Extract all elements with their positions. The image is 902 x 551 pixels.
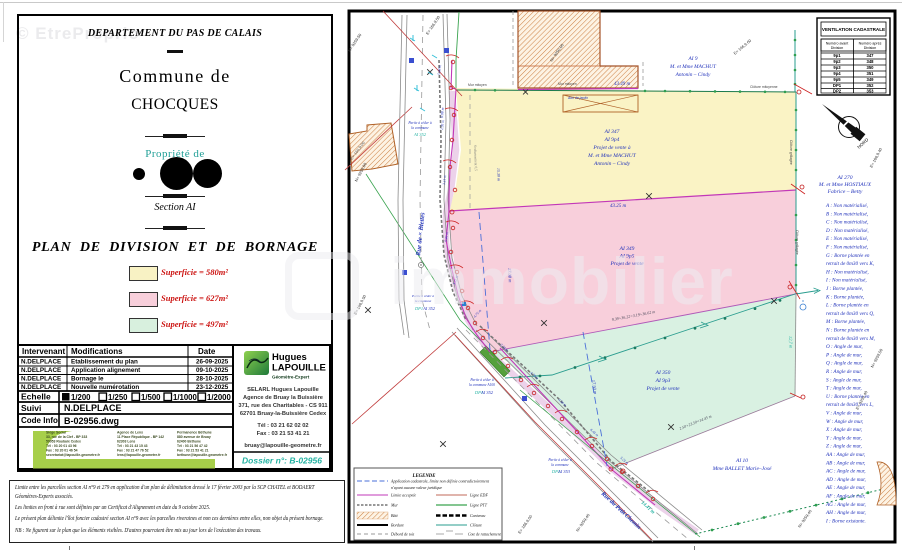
- svg-text:Antonin – Cindy: Antonin – Cindy: [593, 161, 631, 167]
- svg-text:Caniveau: Caniveau: [470, 513, 485, 518]
- svg-text:retrait de 0m30 vers L,: retrait de 0m30 vers L,: [826, 402, 874, 408]
- svg-text:AI 9p4: AI 9p4: [604, 136, 620, 143]
- svg-text:AD : Angle de mur,: AD : Angle de mur,: [825, 477, 866, 483]
- svg-text:AI 350: AI 350: [655, 370, 671, 376]
- svg-text:N : Borne plantée en: N : Borne plantée en: [825, 328, 870, 334]
- svg-text:P : Angle de mur,: P : Angle de mur,: [825, 352, 862, 358]
- svg-text:9p5: 9p5: [833, 77, 841, 82]
- svg-text:Projet de vente: Projet de vente: [645, 386, 680, 392]
- svg-text:347: 347: [867, 53, 875, 58]
- svg-text:Numéro après: Numéro après: [859, 42, 882, 46]
- svg-text:DP1: DP1: [833, 83, 842, 88]
- svg-text:Division: Division: [831, 46, 844, 50]
- svg-text:Bordure: Bordure: [391, 523, 404, 528]
- svg-text:Mur mitoyen: Mur mitoyen: [558, 82, 577, 86]
- svg-text:retrait de 0m30 vers M,: retrait de 0m30 vers M,: [826, 336, 875, 342]
- svg-text:Clôture grillagée: Clôture grillagée: [795, 230, 799, 255]
- svg-text:Mme BALLET Marie–José: Mme BALLET Marie–José: [712, 466, 772, 472]
- svg-text:M : Borne plantée,: M : Borne plantée,: [825, 319, 865, 325]
- svg-text:E : Non matérialisé,: E : Non matérialisé,: [825, 236, 868, 242]
- svg-text:G : Borne plantée en: G : Borne plantée en: [826, 253, 870, 259]
- svg-text:I : Borne existante.: I : Borne existante.: [825, 518, 866, 524]
- svg-text:C : Non matérialisé,: C : Non matérialisé,: [826, 220, 868, 226]
- svg-text:Débord de toit: Débord de toit: [390, 532, 415, 537]
- svg-text:AI 9: AI 9: [688, 56, 698, 62]
- svg-text:Division: Division: [864, 46, 877, 50]
- svg-text:Clôture: Clôture: [470, 523, 482, 528]
- svg-text:Cote de rattachement: Cote de rattachement: [468, 533, 502, 537]
- svg-text:9p2: 9p2: [833, 59, 841, 64]
- svg-text:U : Borne plantée en: U : Borne plantée en: [826, 394, 870, 400]
- svg-text:Y : Angle de mur,: Y : Angle de mur,: [826, 435, 862, 441]
- svg-text:S : Angle de mur,: S : Angle de mur,: [826, 377, 862, 383]
- svg-text:Z : Angle de mur,: Z : Angle de mur,: [826, 444, 862, 450]
- svg-text:15.30 m: 15.30 m: [496, 168, 502, 181]
- svg-text:retrait de 0m30 vers Q,: retrait de 0m30 vers Q,: [826, 311, 874, 317]
- svg-text:Projet de vente à: Projet de vente à: [592, 145, 630, 151]
- svg-text:AI 347: AI 347: [604, 128, 620, 135]
- svg-text:AI 10: AI 10: [735, 458, 748, 464]
- svg-text:AI 270: AI 270: [836, 175, 852, 181]
- svg-text:AF : Angle de mur,: AF : Angle de mur,: [825, 494, 865, 500]
- svg-text:la commune: la commune: [551, 463, 569, 467]
- svg-text:J : Borne plantée,: J : Borne plantée,: [826, 286, 863, 292]
- svg-text:M. et Mme HOSTIAUX: M. et Mme HOSTIAUX: [818, 182, 872, 188]
- svg-text:L : Borne plantée en: L : Borne plantée en: [825, 303, 869, 309]
- svg-text:349: 349: [867, 77, 875, 82]
- svg-text:351: 351: [867, 71, 875, 76]
- svg-text:Mur mitoyen: Mur mitoyen: [468, 83, 487, 87]
- svg-text:Limite acceptée: Limite acceptée: [390, 493, 416, 498]
- svg-text:AI 352: AI 352: [480, 390, 494, 395]
- svg-text:9p1: 9p1: [833, 53, 841, 58]
- svg-text:Partie à céder à: Partie à céder à: [407, 121, 431, 125]
- svg-text:T : Angle de mur,: T : Angle de mur,: [826, 386, 862, 392]
- svg-text:Antonin – Cindy: Antonin – Cindy: [675, 72, 711, 78]
- svg-text:Partie à céder à: Partie à céder à: [469, 378, 493, 382]
- svg-text:M. et Mme MACHUT: M. et Mme MACHUT: [669, 64, 717, 70]
- svg-text:AB : Angle de mur,: AB : Angle de mur,: [825, 460, 865, 466]
- svg-text:Numéro avant: Numéro avant: [826, 42, 849, 46]
- svg-text:K : Borne plantée,: K : Borne plantée,: [825, 294, 864, 300]
- svg-text:Clôture mitoyenne: Clôture mitoyenne: [750, 85, 778, 89]
- svg-text:Ligne EDF: Ligne EDF: [469, 493, 488, 498]
- svg-text:O : Angle de mur,: O : Angle de mur,: [826, 344, 863, 350]
- svg-text:AG : Angle de mur,: AG : Angle de mur,: [825, 502, 866, 508]
- svg-text:352: 352: [867, 83, 875, 88]
- svg-text:348: 348: [867, 59, 875, 64]
- svg-text:350: 350: [867, 65, 875, 70]
- svg-text:43.25 m: 43.25 m: [610, 204, 627, 209]
- svg-text:VENTILATION CADASTRALE: VENTILATION CADASTRALE: [822, 27, 885, 32]
- svg-text:Q : Angle de mur,: Q : Angle de mur,: [826, 361, 863, 367]
- svg-text:AI 9p3: AI 9p3: [655, 378, 671, 384]
- svg-text:V : Angle de mur,: V : Angle de mur,: [826, 411, 862, 417]
- svg-text:Partie à céder à: Partie à céder à: [547, 458, 571, 462]
- svg-text:Bâti: Bâti: [391, 513, 398, 518]
- svg-text:I : Non matérialisé,: I : Non matérialisé,: [825, 278, 867, 284]
- svg-text:retrait de 0m30 vers K,: retrait de 0m30 vers K,: [826, 261, 874, 267]
- svg-text:A : Non matérialisé,: A : Non matérialisé,: [825, 203, 868, 209]
- svg-text:AI 353: AI 353: [557, 469, 571, 474]
- svg-text:Clôture grillagée: Clôture grillagée: [789, 140, 793, 165]
- svg-text:la commune A100: la commune A100: [469, 383, 495, 387]
- svg-text:AH : Angle de mur,: AH : Angle de mur,: [825, 510, 866, 516]
- svg-text:Abri de jardin: Abri de jardin: [567, 96, 588, 100]
- svg-text:H : Non matérialisé,: H : Non matérialisé,: [825, 269, 869, 275]
- svg-text:AC : Angle de mur,: AC : Angle de mur,: [825, 469, 866, 475]
- svg-text:la commune: la commune: [411, 126, 429, 130]
- svg-text:AE : Angle de mur,: AE : Angle de mur,: [825, 485, 865, 491]
- svg-text:43.49 m: 43.49 m: [614, 82, 631, 87]
- svg-text:9p4: 9p4: [833, 71, 841, 76]
- svg-text:Mur: Mur: [390, 503, 398, 508]
- svg-text:B : Non matérialisé,: B : Non matérialisé,: [826, 211, 868, 217]
- svg-text:AI 352: AI 352: [413, 132, 427, 137]
- svg-text:Ligne PTT: Ligne PTT: [469, 503, 488, 508]
- svg-text:n'ayant aucune valeur juridiqu: n'ayant aucune valeur juridique: [391, 485, 442, 490]
- svg-text:AA : Angle de mur,: AA : Angle de mur,: [825, 452, 865, 458]
- svg-text:X : Angle de mur,: X : Angle de mur,: [825, 427, 862, 433]
- svg-text:Fabrice – Betty: Fabrice – Betty: [827, 189, 863, 195]
- svg-text:R : Angle de mur,: R : Angle de mur,: [825, 369, 862, 375]
- svg-text:F : Non matérialisé,: F : Non matérialisé,: [825, 245, 868, 251]
- svg-text:M. et Mme MACHUT: M. et Mme MACHUT: [587, 153, 637, 159]
- svg-text:9p3: 9p3: [833, 65, 841, 70]
- svg-text:D : Non matérialisé,: D : Non matérialisé,: [825, 228, 869, 234]
- svg-text:W : Angle de mur,: W : Angle de mur,: [826, 419, 863, 425]
